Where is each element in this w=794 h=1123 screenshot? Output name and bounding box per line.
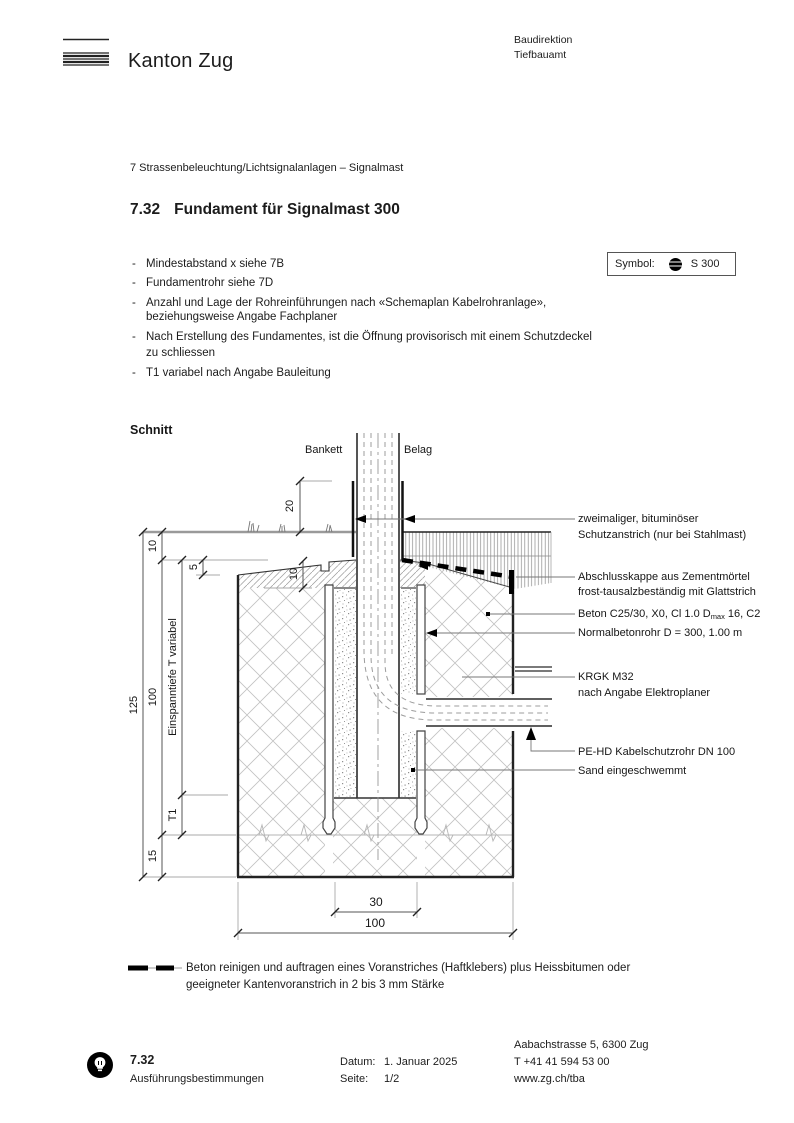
annotation-krgk-2: nach Angabe Elektroplaner xyxy=(578,687,710,699)
annotation-pehd: PE-HD Kabelschutzrohr DN 100 xyxy=(578,746,735,758)
dim-15: 15 xyxy=(147,850,159,862)
note-line: -Fundamentrohr siehe 7D xyxy=(132,277,273,289)
symbol-label: Symbol: xyxy=(615,258,655,270)
bitumen-legend-icon xyxy=(128,963,182,973)
annotation-krgk-1: KRGK M32 xyxy=(578,671,634,683)
annotations: zweimaliger, bituminöser Schutzanstrich … xyxy=(578,513,760,777)
org-unit-1: Baudirektion xyxy=(514,33,572,49)
document-page: Kanton Zug Baudirektion Tiefbauamt 7 Str… xyxy=(0,0,794,1123)
beton-post: 16, C2 xyxy=(725,608,760,620)
footer-date-value: 1. Januar 2025 xyxy=(384,1054,457,1071)
dim-10-top: 10 xyxy=(147,540,159,552)
dim-einspanntiefe: Einspanntiefe T variabel xyxy=(167,618,179,736)
drawing-heading: Schnitt xyxy=(130,423,173,437)
footer-date-label: Datum: xyxy=(340,1054,375,1071)
note-text: T1 variabel nach Angabe Bauleitung xyxy=(146,367,331,379)
symbol-box: Symbol: S 300 xyxy=(607,252,736,276)
dim-10-cap: 10 xyxy=(288,568,300,580)
footer-phone: T +41 41 594 53 00 xyxy=(514,1054,610,1071)
legend-line-2: geeigneter Kantenvoranstrich in 2 bis 3 … xyxy=(186,977,630,994)
dim-30: 30 xyxy=(369,895,383,909)
note-line: -Mindestabstand x siehe 7B xyxy=(132,258,284,270)
dim-100-v: 100 xyxy=(147,688,159,706)
dim-t1: T1 xyxy=(167,809,179,822)
note-text: Mindestabstand x siehe 7B xyxy=(146,258,284,270)
legend-text: Beton reinigen und auftragen eines Voran… xyxy=(186,960,630,993)
footer-page-value: 1/2 xyxy=(384,1071,399,1088)
annotation-sand: Sand eingeschwemmt xyxy=(578,765,686,777)
lightbulb-icon xyxy=(86,1051,114,1079)
note-text: zu schliessen xyxy=(146,347,215,359)
symbol-code: S 300 xyxy=(691,258,720,270)
beton-sub: max xyxy=(711,612,725,621)
note-dash: - xyxy=(132,367,146,379)
footer-web: www.zg.ch/tba xyxy=(514,1071,585,1088)
ground-line xyxy=(143,521,356,532)
kanton-zug-logo-icon xyxy=(62,38,110,68)
brand-title: Kanton Zug xyxy=(128,50,233,73)
page-title: 7.32Fundament für Signalmast 300 xyxy=(130,201,400,219)
note-dash: - xyxy=(132,331,146,343)
signal-mast-symbol-icon xyxy=(669,258,682,271)
label-bankett: Bankett xyxy=(305,444,342,456)
note-text: Fundamentrohr siehe 7D xyxy=(146,277,273,289)
dim-125: 125 xyxy=(128,696,140,714)
grass-tufts xyxy=(248,521,332,532)
note-line: -Anzahl und Lage der Rohreinführungen na… xyxy=(132,297,546,309)
section-number: 7.32 xyxy=(130,201,160,218)
note-dash: - xyxy=(132,258,146,270)
annotation-abschlusskappe-1: Abschlusskappe aus Zementmörtel xyxy=(578,571,750,583)
dim-100-h: 100 xyxy=(365,916,385,930)
note-line: -T1 variabel nach Angabe Bauleitung xyxy=(132,367,331,379)
annotation-normalbetonrohr: Normalbetonrohr D = 300, 1.00 m xyxy=(578,627,742,639)
label-belag: Belag xyxy=(404,444,432,456)
note-text: Nach Erstellung des Fundamentes, ist die… xyxy=(146,331,592,343)
breadcrumb: 7 Strassenbeleuchtung/Lichtsignalanlagen… xyxy=(130,162,403,174)
annotation-schutzanstrich-2: Schutzanstrich (nur bei Stahlmast) xyxy=(578,529,746,541)
note-dash: - xyxy=(132,297,146,309)
beton-pre: Beton C25/30, X0, Cl 1.0 D xyxy=(578,608,711,620)
note-line: -Nach Erstellung des Fundamentes, ist di… xyxy=(132,331,592,343)
section-drawing: Schnitt Bankett Belag xyxy=(0,415,794,960)
title-text: Fundament für Signalmast 300 xyxy=(174,201,400,218)
footer-address: Aabachstrasse 5, 6300 Zug xyxy=(514,1037,649,1054)
annotation-beton: Beton C25/30, X0, Cl 1.0 Dmax 16, C2 xyxy=(578,608,760,621)
annotation-schutzanstrich-1: zweimaliger, bituminöser xyxy=(578,513,699,525)
note-text: Anzahl und Lage der Rohreinführungen nac… xyxy=(146,297,546,309)
note-line: zu schliessen xyxy=(132,347,215,359)
note-line: beziehungsweise Angabe Fachplaner xyxy=(132,311,337,323)
note-dash: - xyxy=(132,277,146,289)
footer-section-number: 7.32 xyxy=(130,1053,154,1067)
dim-20: 20 xyxy=(284,500,296,512)
org-unit-2: Tiefbauamt xyxy=(514,48,566,64)
note-text: beziehungsweise Angabe Fachplaner xyxy=(146,311,337,323)
footer-page-label: Seite: xyxy=(340,1071,368,1088)
footer-doc-type: Ausführungsbestimmungen xyxy=(130,1071,264,1088)
legend-line-1: Beton reinigen und auftragen eines Voran… xyxy=(186,960,630,977)
dim-5: 5 xyxy=(188,564,200,570)
annotation-abschlusskappe-2: frost-tausalzbeständig mit Glattstrich xyxy=(578,586,756,598)
